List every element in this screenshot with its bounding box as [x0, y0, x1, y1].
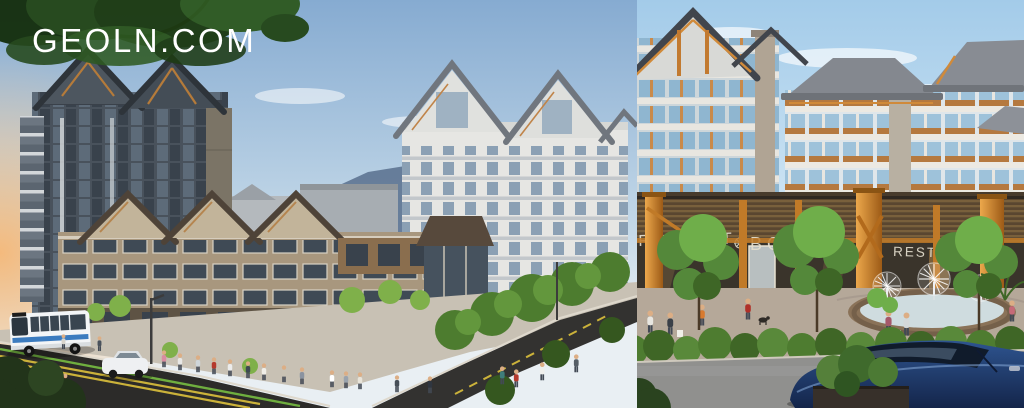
right-rendering: CROSSFIT BOOKS RESTAURANT [637, 0, 1024, 408]
planter-box [813, 386, 909, 408]
screenshot: CROSSFIT BOOKS RESTAURANT [0, 0, 1024, 408]
left-rendering [0, 0, 637, 408]
transit-bus [5, 309, 95, 361]
watermark: GEOLN.COM [32, 22, 256, 60]
